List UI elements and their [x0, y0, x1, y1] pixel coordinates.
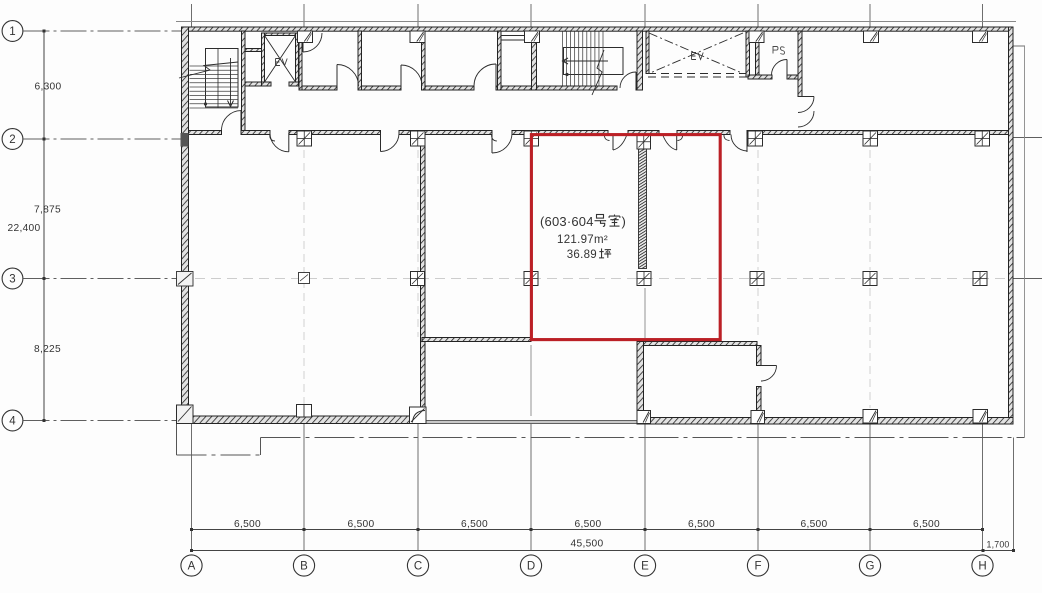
- svg-text:6,300: 6,300: [35, 82, 62, 93]
- svg-text:6,500: 6,500: [461, 519, 488, 530]
- svg-text:E: E: [641, 561, 649, 573]
- svg-text:(603·604: (603·604: [540, 214, 594, 229]
- svg-text:6,500: 6,500: [688, 519, 715, 530]
- svg-text:3: 3: [9, 274, 15, 286]
- svg-text:7,875: 7,875: [34, 205, 61, 216]
- svg-text:A: A: [188, 561, 196, 573]
- svg-text:F: F: [754, 561, 761, 573]
- svg-text:6,500: 6,500: [575, 519, 602, 530]
- svg-text:22,400: 22,400: [8, 223, 41, 234]
- svg-text:1,700: 1,700: [986, 540, 1009, 550]
- svg-text:4: 4: [9, 416, 16, 428]
- svg-text:6,500: 6,500: [348, 519, 375, 530]
- svg-text:1: 1: [9, 26, 15, 38]
- svg-text:C: C: [414, 561, 422, 573]
- svg-text:45,500: 45,500: [571, 539, 604, 550]
- svg-text:H: H: [978, 561, 986, 573]
- svg-text:6,500: 6,500: [913, 519, 940, 530]
- svg-text:B: B: [300, 561, 308, 573]
- svg-text:): ): [622, 214, 626, 229]
- svg-text:2: 2: [9, 134, 15, 146]
- svg-text:G: G: [866, 561, 875, 573]
- svg-text:8,225: 8,225: [34, 344, 61, 355]
- svg-text:6,500: 6,500: [234, 519, 261, 530]
- svg-text:D: D: [527, 561, 535, 573]
- svg-text:36.89: 36.89: [567, 249, 597, 261]
- svg-text:121.97m²: 121.97m²: [557, 234, 608, 246]
- svg-text:6,500: 6,500: [801, 519, 828, 530]
